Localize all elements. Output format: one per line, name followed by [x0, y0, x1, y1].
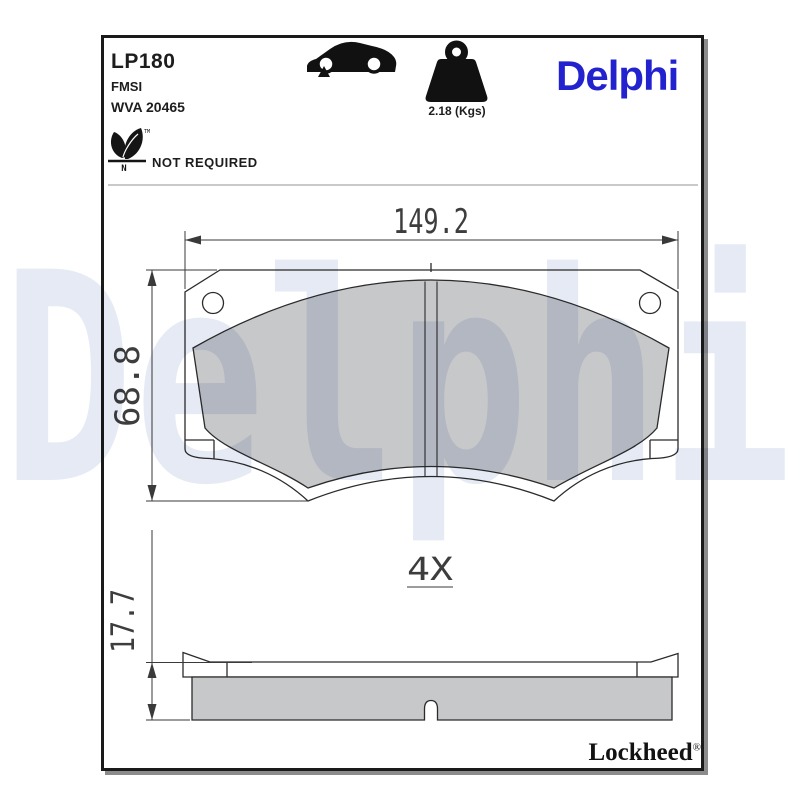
- quantity-label: 4X: [407, 550, 453, 588]
- brake-pad-technical-drawing: 149.2 68.8 17.7 4X: [0, 0, 800, 800]
- lockheed-wordmark: Lockheed: [588, 739, 692, 766]
- side-view-friction-material: [192, 677, 672, 720]
- lockheed-logo: Lockheed®: [555, 740, 701, 765]
- mounting-hole-right: [640, 293, 661, 314]
- side-view-backplate: [183, 653, 678, 678]
- mounting-hole-left: [203, 293, 224, 314]
- drawing-sheet: LP180 FMSI WVA 20465 N TM NOT REQUIRED 2…: [0, 0, 800, 800]
- dim-thickness-label: 17.7: [104, 589, 142, 653]
- dim-width-label: 149.2: [393, 202, 469, 242]
- dim-height-label: 68.8: [108, 345, 148, 427]
- registered-mark: ®: [693, 742, 701, 754]
